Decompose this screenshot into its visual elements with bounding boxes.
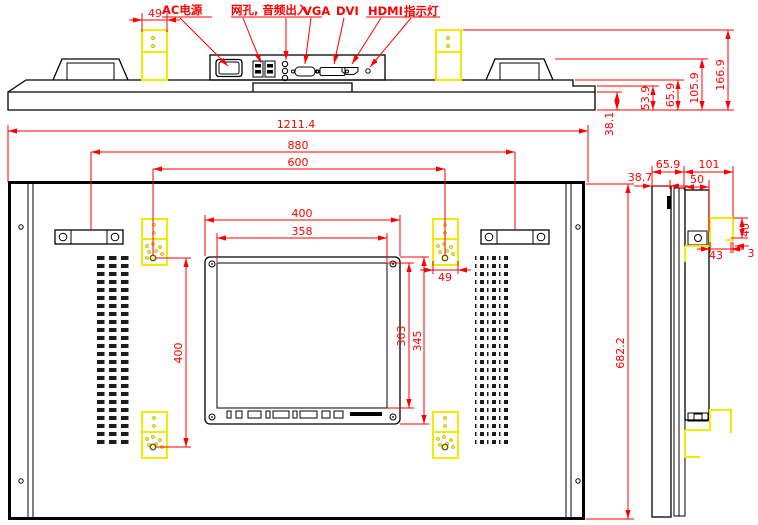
hdmi-port-icon [342, 68, 358, 75]
electronics-module [205, 257, 400, 424]
dim-text-400v: 400 [172, 343, 185, 364]
back-left-handle [55, 230, 123, 244]
dim-text-880: 880 [288, 139, 309, 152]
label-dvi: DVI [336, 4, 359, 18]
dim-text-38-1: 38.1 [603, 112, 616, 137]
dim-text-303: 303 [395, 326, 408, 347]
side-panel-mark [667, 196, 671, 209]
top-view: AC电源 网孔, 音频出入 VGA DVI HDMI 指示灯 49 [8, 3, 734, 136]
dim-text-43: 43 [709, 249, 723, 262]
leader-net [243, 18, 261, 63]
dim-text-49-top: 49 [148, 7, 162, 20]
dim-text-345: 345 [411, 331, 424, 352]
label-vga: VGA [303, 4, 330, 18]
dim-text-38-7: 38.7 [628, 171, 653, 184]
edge-screw [576, 479, 580, 483]
module-connector-row [227, 411, 382, 418]
dim-text-49-back: 49 [438, 271, 452, 284]
dim-text-400w: 400 [292, 207, 313, 220]
dvi-port-icon [317, 68, 349, 76]
port-labels: AC电源 网孔, 音频出入 VGA DVI HDMI 指示灯 [162, 3, 440, 67]
label-hdmi: HDMI [368, 4, 403, 18]
top-view-left-handle [53, 59, 128, 80]
vesa-hole [442, 255, 448, 261]
edge-screw [19, 479, 23, 483]
side-view: 65.9 101 38.7 50 40 43 3 [628, 158, 755, 517]
label-ac-power: AC电源 [162, 3, 203, 17]
vesa-hole [442, 444, 448, 450]
vesa-hole [150, 255, 156, 261]
dim-text-53-9: 53.9 [639, 86, 652, 111]
dim-text-166-9: 166.9 [714, 59, 727, 91]
leader-hdmi [352, 18, 381, 64]
side-front-panel [652, 186, 671, 517]
dim-text-1211-4: 1211.4 [277, 118, 316, 131]
leader-vga [305, 18, 311, 64]
leader-dvi [334, 18, 344, 64]
side-lower-mount [685, 410, 731, 457]
dim-text-50: 50 [690, 173, 704, 186]
dim-text-40: 40 [739, 223, 752, 237]
technical-drawing-monitor: AC电源 网孔, 音频出入 VGA DVI HDMI 指示灯 49 [0, 0, 758, 525]
leader-ac [180, 18, 228, 66]
dim-text-65-9-side: 65.9 [656, 158, 681, 171]
top-view-lower-slab [8, 92, 595, 110]
dim-text-600: 600 [288, 156, 309, 169]
dim-text-3: 3 [748, 247, 755, 260]
ac-socket-icon [216, 60, 242, 77]
vesa-bracket-lower-left [142, 412, 167, 458]
dim-text-105-9: 105.9 [688, 72, 701, 104]
dim-text-358: 358 [292, 225, 313, 238]
top-view-upper-slab [8, 80, 595, 92]
label-indicator: 指示灯 [404, 4, 439, 18]
top-view-right-dims: 38.1 53.9 65.9 105.9 166.9 [463, 30, 734, 136]
dim-text-682-2: 682.2 [614, 337, 627, 369]
top-view-right-handle [486, 59, 553, 80]
dim-text-65-9-top: 65.9 [664, 83, 677, 108]
vent-grille-right [475, 256, 508, 448]
vga-port-icon [292, 67, 319, 76]
top-view-left-bracket [142, 30, 167, 80]
back-right-handle [481, 230, 549, 244]
audio-jacks-icon [282, 61, 287, 80]
label-net-audio: 网孔, 音频出入 [231, 3, 309, 17]
top-view-rear-bump [253, 83, 352, 92]
side-rear-box [685, 190, 709, 420]
edge-screw [19, 225, 23, 229]
drawing-canvas: AC电源 网孔, 音频出入 VGA DVI HDMI 指示灯 49 [0, 0, 758, 525]
ethernet-ports-icon [253, 61, 275, 77]
edge-screw [576, 225, 580, 229]
vent-grille-left [97, 256, 130, 448]
indicator-led-icon [366, 69, 370, 73]
vesa-hole [150, 444, 156, 450]
side-mid-layer2 [679, 188, 685, 516]
back-view: 1211.4 880 600 400 358 303 345 [8, 118, 634, 519]
dim-text-101: 101 [699, 158, 720, 171]
vesa-bracket-lower-right [433, 412, 458, 458]
side-mid-layer [674, 188, 679, 516]
top-view-right-bracket [436, 30, 461, 80]
